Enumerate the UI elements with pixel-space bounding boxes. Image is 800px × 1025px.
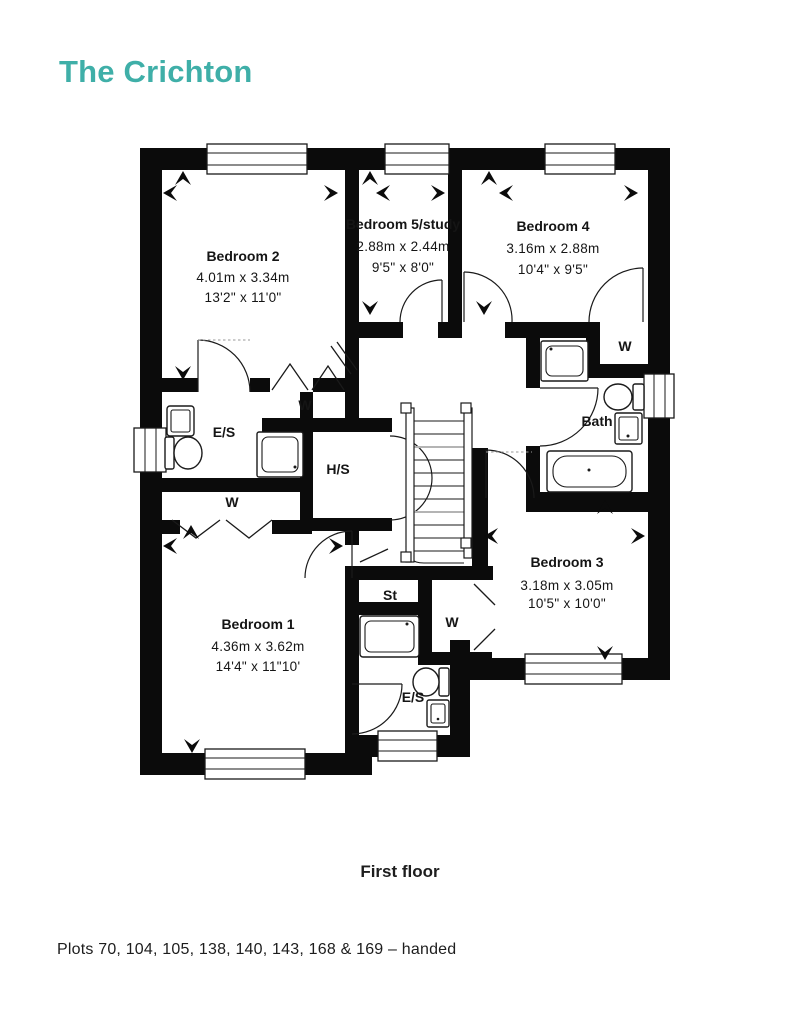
- bifold-door: [360, 549, 388, 562]
- dimension-arrow: [362, 171, 378, 185]
- wardrobe-label: W: [225, 494, 239, 510]
- room-name: Bedroom 4: [516, 218, 589, 234]
- room-dim-imperial: 9'5" x 8'0": [372, 260, 434, 275]
- window: [545, 144, 615, 174]
- dimension-arrow: [431, 185, 445, 201]
- door-arc: [198, 340, 250, 392]
- wall-segment: [448, 170, 462, 322]
- dimension-arrow: [175, 171, 191, 185]
- dimension-arrow: [376, 185, 390, 201]
- sink: [427, 700, 449, 727]
- door-arc: [400, 280, 442, 322]
- dimension-arrow: [624, 185, 638, 201]
- wardrobe-label: W: [445, 614, 459, 630]
- wall-segment: [526, 492, 648, 512]
- wall-segment: [162, 520, 180, 534]
- bifold-door: [474, 629, 495, 650]
- dimension-arrow: [476, 301, 492, 315]
- wall-segment: [272, 520, 312, 534]
- dimension-arrow: [184, 739, 200, 753]
- ensuite-label: E/S: [402, 689, 425, 705]
- wall-segment: [438, 322, 462, 338]
- dimension-arrow: [499, 185, 513, 201]
- wardrobe-label: W: [618, 338, 632, 354]
- dimension-arrow: [329, 538, 343, 554]
- stair-rail: [464, 408, 472, 558]
- window: [378, 731, 437, 761]
- newel-post: [461, 538, 471, 548]
- dimension-arrow: [631, 528, 645, 544]
- wall-segment: [586, 364, 648, 378]
- room-dim-imperial: 10'5" x 10'0": [528, 596, 606, 611]
- room-name: Bedroom 1: [221, 616, 294, 632]
- ensuite-label: E/S: [213, 424, 236, 440]
- wall-segment: [345, 170, 359, 430]
- stair-rail: [406, 408, 414, 562]
- hot-store-label: H/S: [326, 461, 349, 477]
- dimension-arrow: [481, 171, 497, 185]
- door-arc: [305, 531, 352, 578]
- room-dim-metric: 3.18m x 3.05m: [520, 578, 613, 593]
- plots-note: Plots 70, 104, 105, 138, 140, 143, 168 &…: [57, 941, 456, 959]
- shower: [541, 341, 588, 381]
- toilet: [604, 384, 644, 410]
- window: [385, 144, 449, 174]
- dimension-arrow: [175, 366, 191, 380]
- dimension-arrow: [362, 301, 378, 315]
- newel-post: [461, 403, 471, 413]
- store-label: St: [383, 587, 397, 603]
- wall-segment: [162, 478, 312, 492]
- dimension-arrow: [324, 185, 338, 201]
- newel-post: [401, 552, 411, 562]
- page: The Crichton: [0, 0, 800, 1025]
- window: [134, 428, 166, 472]
- wall-segment: [526, 322, 540, 388]
- staircase: [401, 403, 472, 563]
- dimension-arrow: [163, 185, 177, 201]
- shower: [360, 616, 419, 657]
- door-arc: [589, 268, 643, 322]
- bathtub: [547, 451, 632, 492]
- door-arc: [352, 684, 402, 734]
- bifold-door: [272, 364, 308, 390]
- room-name: Bedroom 2: [206, 248, 279, 264]
- room-dim-imperial: 10'4" x 9'5": [518, 262, 588, 277]
- floor-label: First floor: [0, 862, 800, 882]
- room-name: Bedroom 5/study: [346, 216, 461, 232]
- wall-segment: [345, 602, 432, 615]
- room-dim-imperial: 14'4" x 11"10': [216, 659, 301, 674]
- wardrobe-label: W: [298, 397, 312, 413]
- window: [525, 654, 622, 684]
- room-dim-metric: 3.16m x 2.88m: [506, 241, 599, 256]
- newel-post: [401, 403, 411, 413]
- door-arc: [464, 272, 512, 322]
- wall-segment: [418, 652, 492, 665]
- room-dim-imperial: 13'2" x 11'0": [205, 290, 282, 305]
- dimension-arrow: [183, 525, 199, 539]
- wall-segment: [505, 322, 593, 338]
- room-dim-metric: 4.36m x 3.62m: [211, 639, 304, 654]
- bifold-door: [474, 584, 495, 605]
- wall-segment: [162, 378, 198, 392]
- bifold-door: [226, 520, 272, 538]
- room-dim-metric: 2.88m x 2.44m: [356, 239, 449, 254]
- wall-segment: [250, 378, 270, 392]
- room-dim-metric: 4.01m x 3.34m: [196, 270, 289, 285]
- toilet: [165, 437, 202, 469]
- shower: [257, 432, 303, 477]
- sink: [167, 406, 194, 436]
- window: [205, 749, 305, 779]
- window: [644, 374, 674, 418]
- bath-label: Bath: [581, 413, 612, 429]
- wall-segment: [345, 322, 403, 338]
- wall-segment: [418, 566, 432, 665]
- wall-segment: [262, 418, 392, 432]
- dimension-arrow: [163, 538, 177, 554]
- window: [207, 144, 307, 174]
- room-name: Bedroom 3: [530, 554, 603, 570]
- sink: [615, 413, 642, 444]
